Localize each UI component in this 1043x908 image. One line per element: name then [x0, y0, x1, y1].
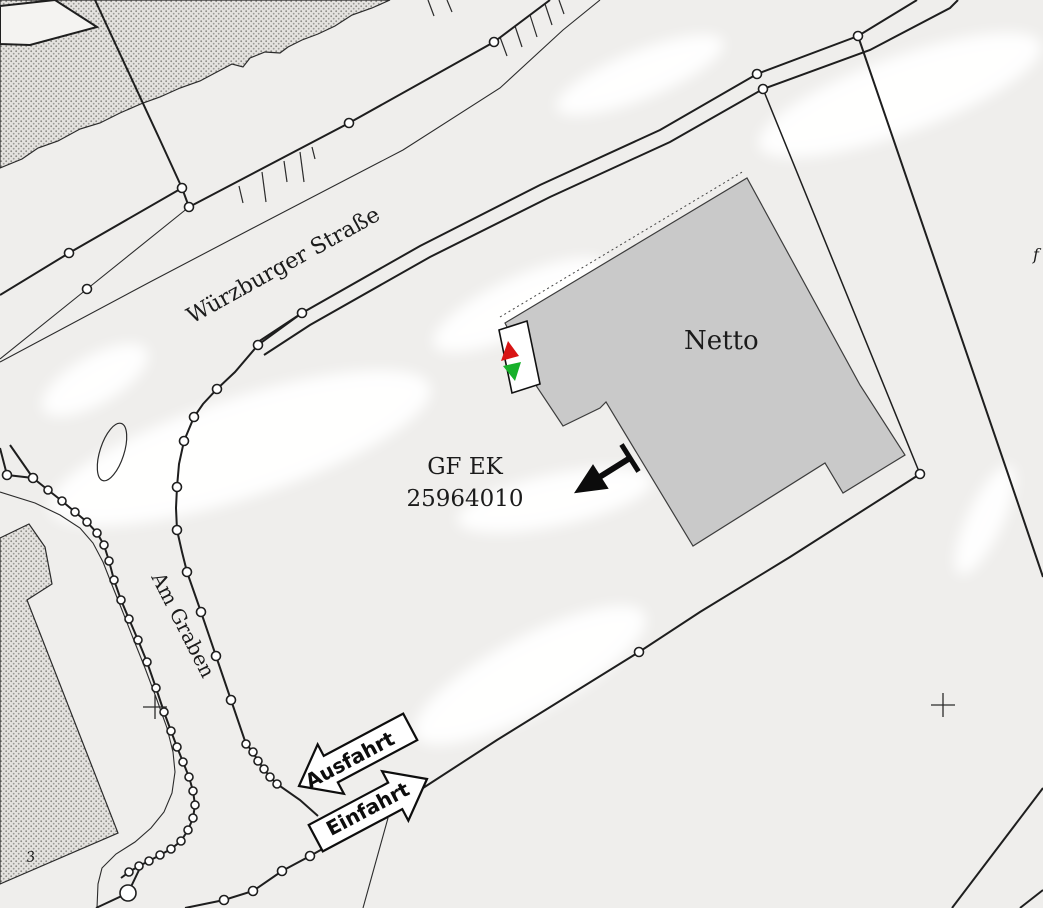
- cadastral-map: Würzburger Straße Am Graben Netto GF EK …: [0, 0, 1043, 908]
- building-label-netto: Netto: [684, 326, 759, 356]
- parcel-code-line1: GF EK: [427, 454, 503, 480]
- major-survey-point: [120, 885, 136, 901]
- parcel-code-line2: 25964010: [406, 486, 523, 512]
- map-canvas: Würzburger Straße Am Graben Netto GF EK …: [0, 0, 1043, 908]
